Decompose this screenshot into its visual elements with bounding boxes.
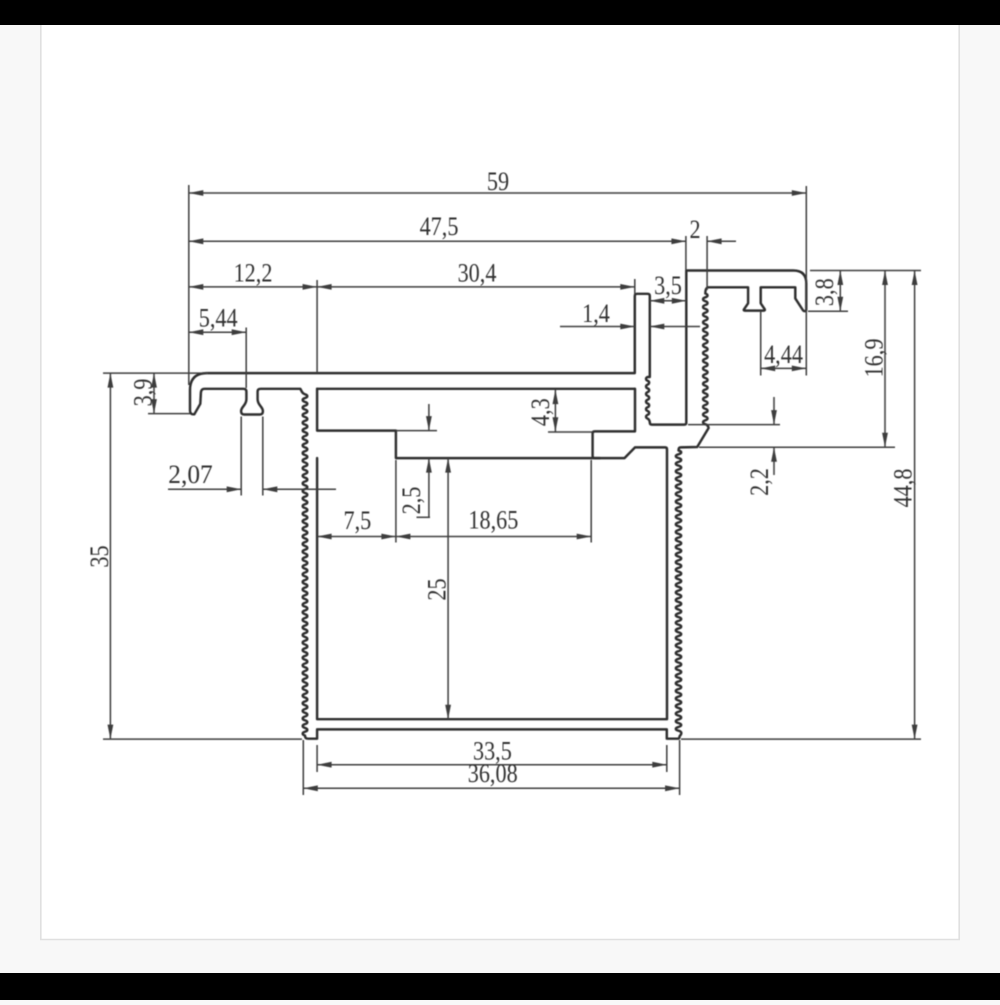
svg-text:25: 25 bbox=[421, 578, 451, 600]
svg-text:44,8: 44,8 bbox=[888, 469, 918, 508]
svg-text:2,5: 2,5 bbox=[396, 487, 426, 515]
svg-text:5,44: 5,44 bbox=[199, 302, 238, 332]
svg-text:4,3: 4,3 bbox=[525, 398, 555, 426]
svg-text:3,5: 3,5 bbox=[654, 270, 682, 300]
svg-text:3,9: 3,9 bbox=[128, 379, 158, 407]
svg-text:16,9: 16,9 bbox=[859, 339, 889, 378]
svg-text:59: 59 bbox=[487, 166, 509, 196]
svg-text:1,4: 1,4 bbox=[582, 298, 610, 328]
svg-text:2,07: 2,07 bbox=[168, 459, 212, 489]
svg-text:35: 35 bbox=[84, 545, 114, 567]
svg-text:30,4: 30,4 bbox=[458, 258, 497, 288]
svg-text:3,8: 3,8 bbox=[809, 278, 839, 306]
svg-text:18,65: 18,65 bbox=[468, 505, 518, 535]
svg-text:12,2: 12,2 bbox=[234, 258, 273, 288]
svg-text:2: 2 bbox=[689, 214, 700, 244]
svg-text:47,5: 47,5 bbox=[420, 211, 459, 241]
svg-text:4,44: 4,44 bbox=[764, 339, 803, 369]
svg-text:36,08: 36,08 bbox=[468, 758, 518, 788]
svg-text:2,2: 2,2 bbox=[744, 468, 774, 496]
svg-text:7,5: 7,5 bbox=[344, 505, 372, 535]
